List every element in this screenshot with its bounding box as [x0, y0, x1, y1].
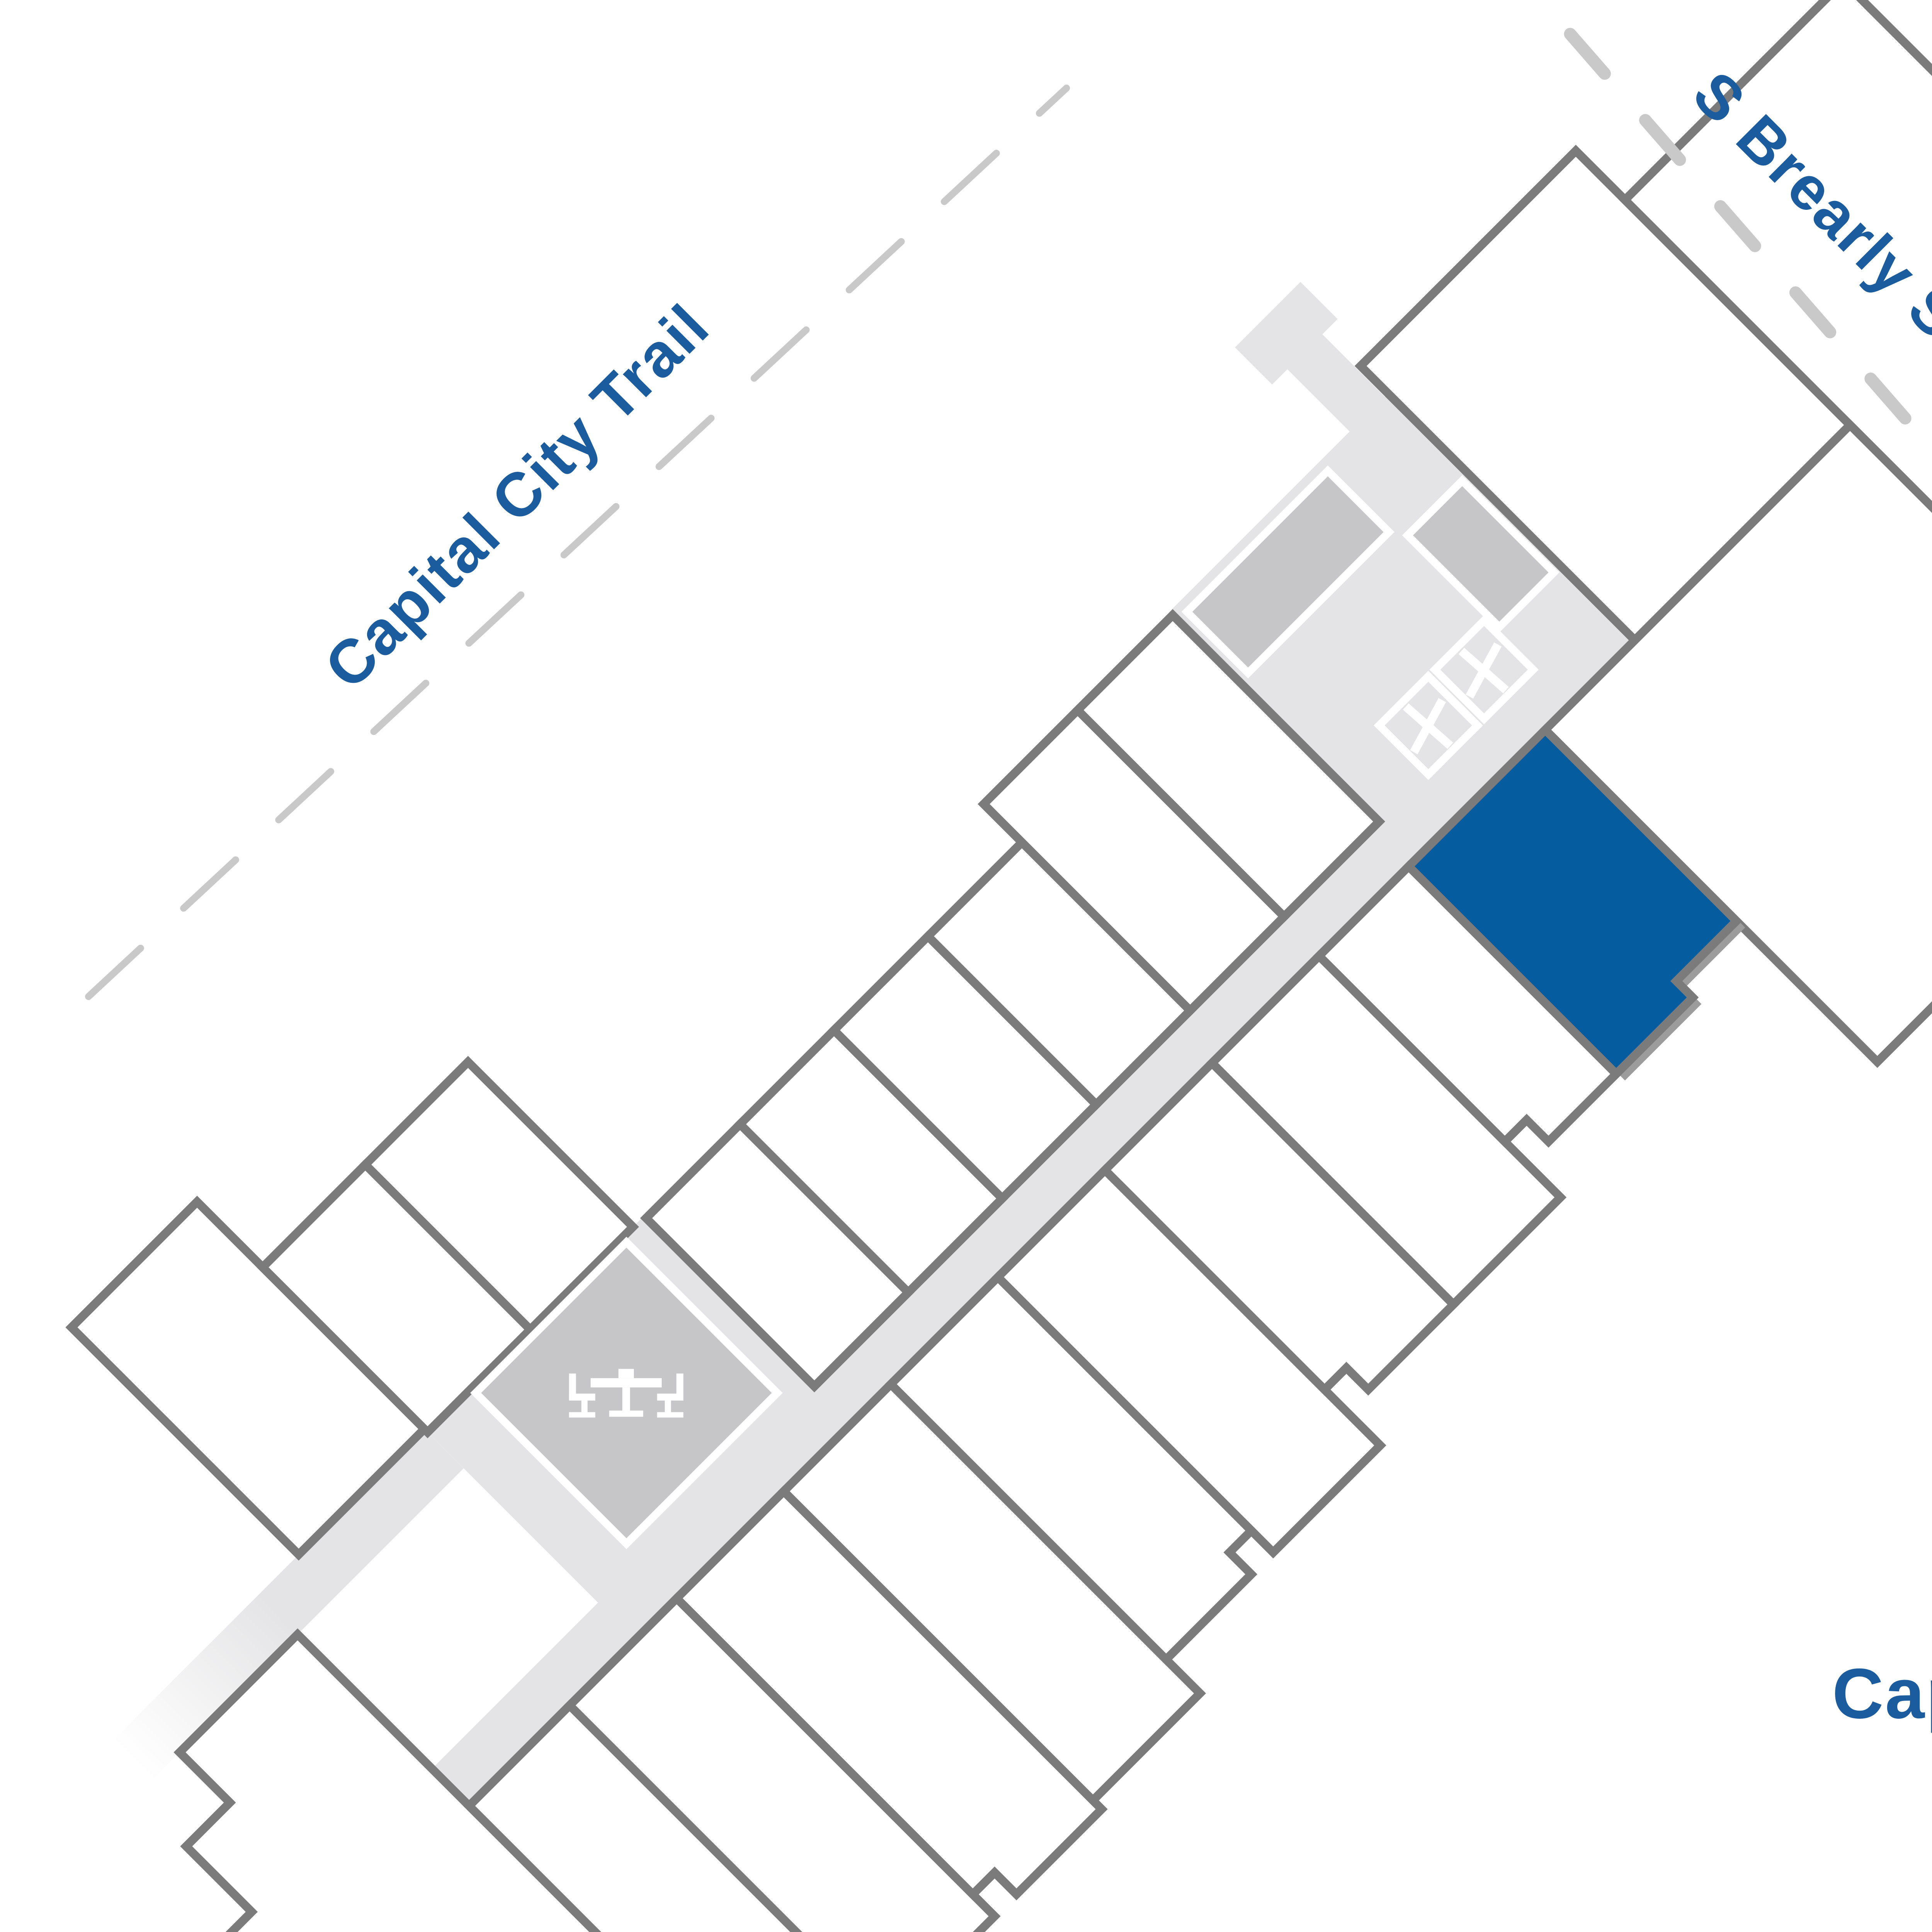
building-plan: [0, 0, 1932, 1932]
capitol-label: Capitol: [1832, 1654, 1932, 1733]
site-plan-canvas: Capital City Trail S Brearly Street Capi…: [0, 0, 1932, 1932]
capital-city-trail-line: [88, 88, 1066, 997]
trail-label: Capital City Trail: [311, 291, 723, 702]
